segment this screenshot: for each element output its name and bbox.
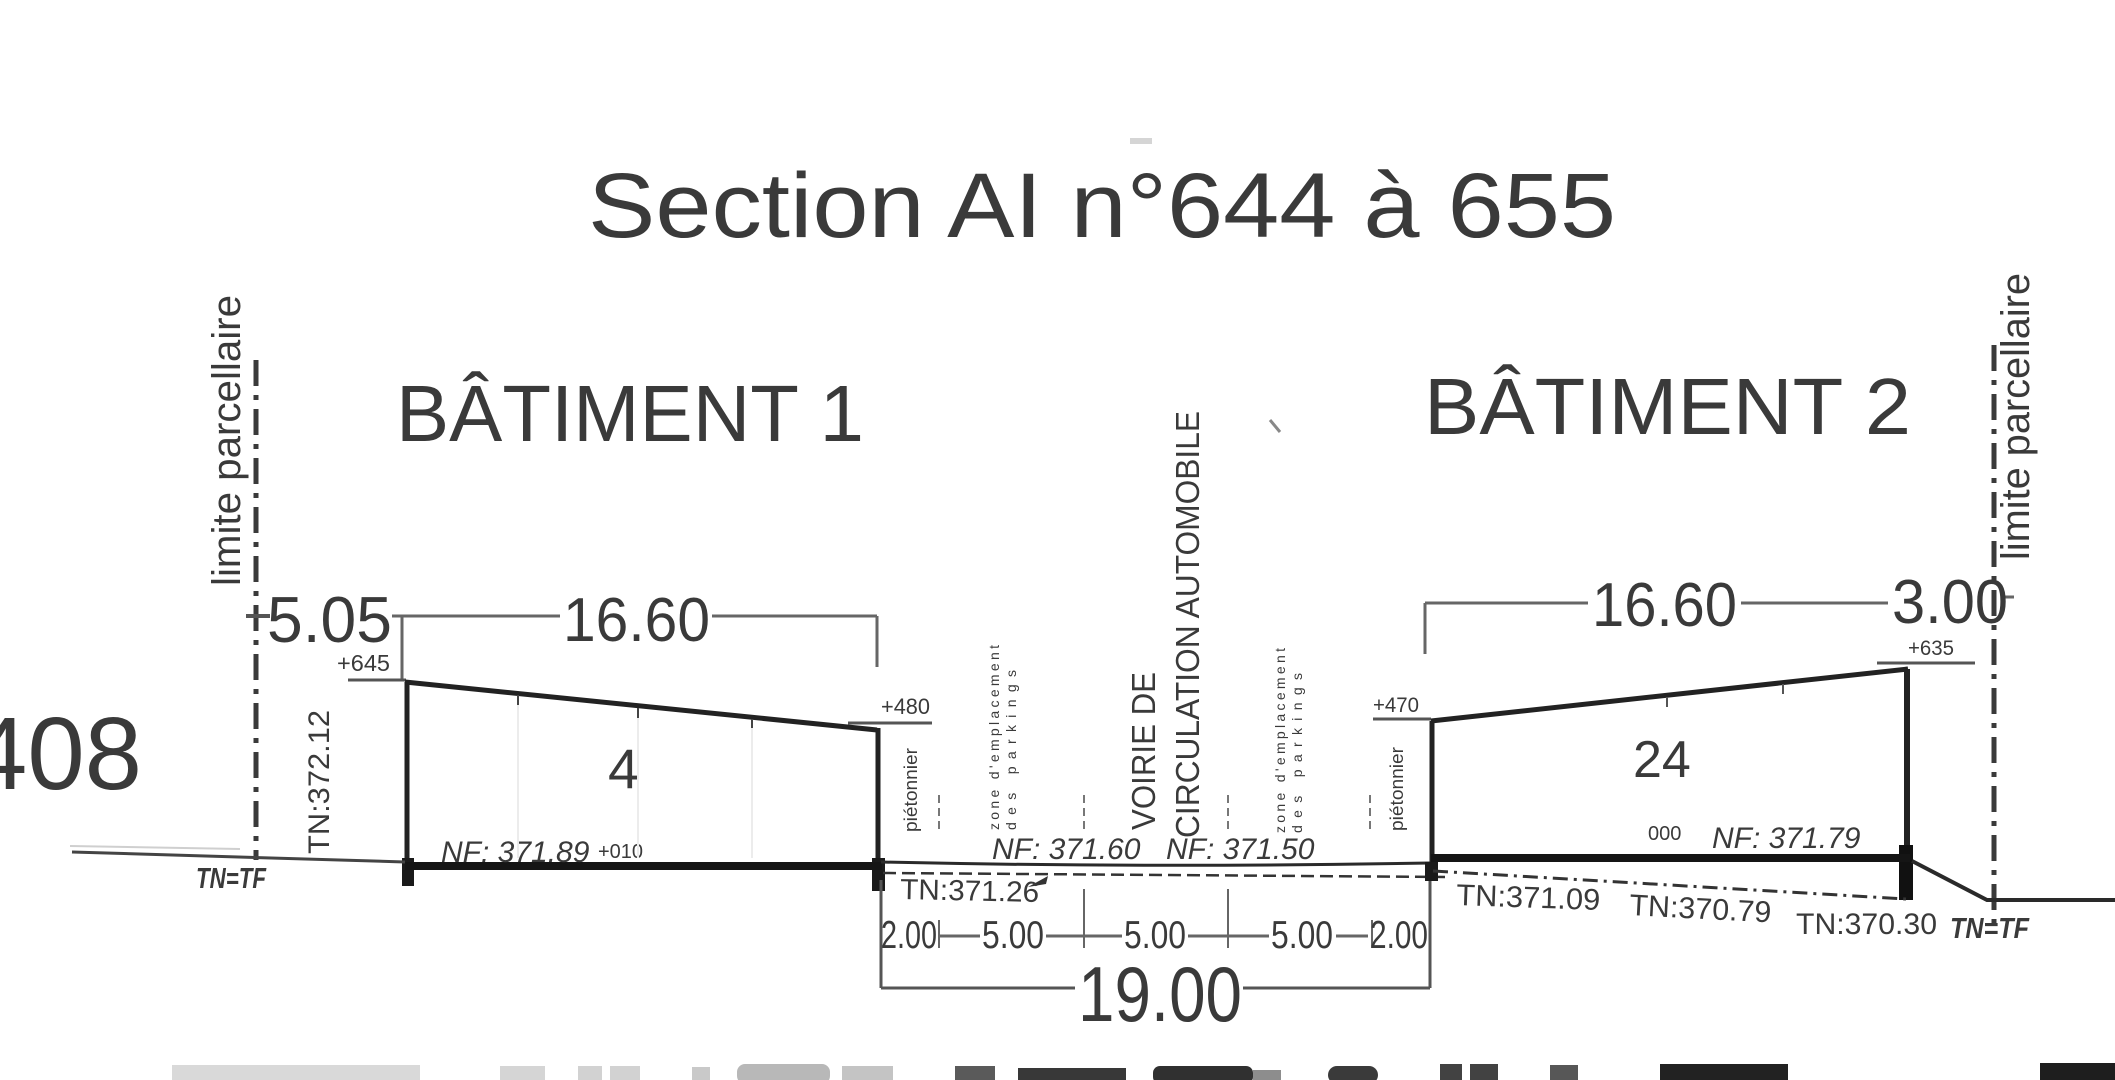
svg-text:NF: 371.89: NF: 371.89 [441,836,590,869]
svg-text:24: 24 [1633,731,1691,789]
svg-text:TN:371.09: TN:371.09 [1456,879,1601,917]
svg-text:TN:370.79: TN:370.79 [1629,889,1773,929]
svg-text:CIRCULATION AUTOMOBILE: CIRCULATION AUTOMOBILE [1169,411,1206,838]
svg-text:TN=TF: TN=TF [196,863,267,895]
svg-text:19.00: 19.00 [1078,950,1242,1038]
svg-text:2.00: 2.00 [881,914,937,957]
svg-text:5.05: 5.05 [267,583,392,656]
svg-text:TN:372.12: TN:372.12 [303,710,336,854]
svg-text:TN:370.30: TN:370.30 [1796,908,1937,941]
svg-text:NF: 371.79: NF: 371.79 [1712,822,1861,855]
svg-text:TN=TF: TN=TF [1950,913,2030,945]
svg-text:5.00: 5.00 [982,914,1044,957]
svg-text:Section AI n°644 à 655: Section AI n°644 à 655 [588,155,1616,257]
svg-text:zone d'emplacement: zone d'emplacement [1272,648,1288,833]
svg-text:zone d'emplacement: zone d'emplacement [986,645,1002,830]
svg-text:2.00: 2.00 [1370,914,1428,957]
svg-text:16.60: 16.60 [1592,571,1737,640]
svg-text:4: 4 [608,737,639,800]
svg-text:limite parcellaire: limite parcellaire [1994,273,2038,560]
svg-text:+470: +470 [1373,694,1419,717]
svg-text:TN:371.26: TN:371.26 [900,874,1040,909]
svg-text:3.00: 3.00 [1892,568,2008,637]
svg-text:des parkings: des parkings [1003,670,1019,830]
svg-text:+645: +645 [337,650,390,676]
svg-text:BÂTIMENT 1: BÂTIMENT 1 [396,369,864,458]
svg-text:NF: 371.50: NF: 371.50 [1166,833,1315,866]
svg-text:+480: +480 [881,694,930,719]
svg-text:BÂTIMENT 2: BÂTIMENT 2 [1424,362,1911,451]
svg-text:limite parcellaire: limite parcellaire [205,295,249,586]
svg-text:408: 408 [0,696,142,811]
svg-text:000: 000 [1648,823,1681,845]
svg-text:piétonnier: piétonnier [1387,747,1407,831]
svg-text:5.00: 5.00 [1271,914,1333,957]
svg-text:VOIRIE DE: VOIRIE DE [1125,672,1162,830]
svg-text:16.60: 16.60 [563,586,710,655]
svg-text:+635: +635 [1908,637,1954,660]
svg-text:piétonnier: piétonnier [901,748,921,832]
svg-text:des parkings: des parkings [1289,673,1305,833]
svg-text:+010: +010 [598,841,643,863]
svg-text:NF: 371.60: NF: 371.60 [992,833,1141,866]
